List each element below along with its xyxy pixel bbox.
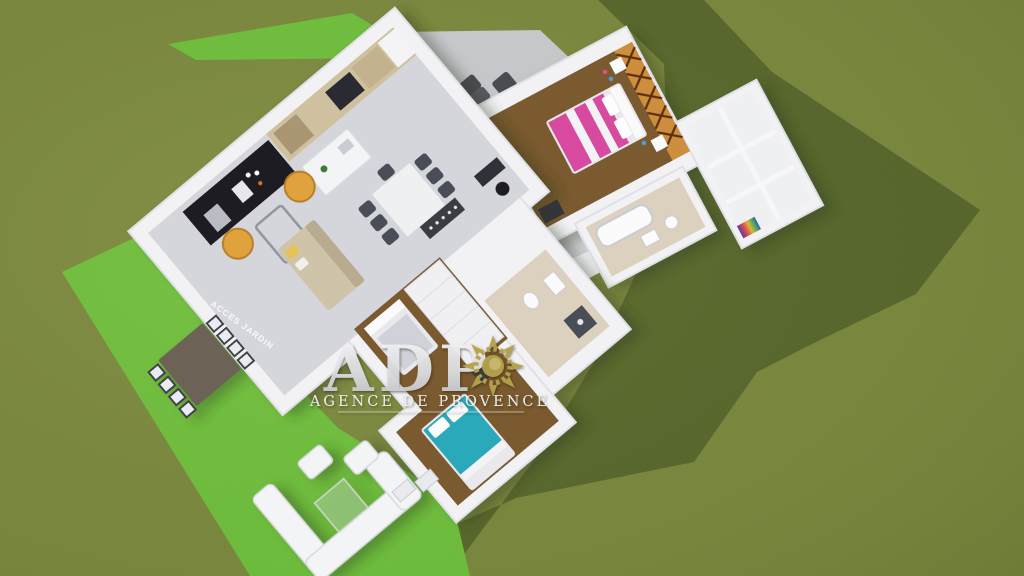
sun-icon [462, 335, 524, 397]
floor-plan-render: ACCES JARDIN ADP AGENCE DE PROVENCE [0, 0, 1024, 576]
tagline-text: AGENCE DE PROVENCE [309, 394, 550, 410]
render-canvas: ACCES JARDIN ADP AGENCE DE PROVENCE [0, 0, 1024, 576]
